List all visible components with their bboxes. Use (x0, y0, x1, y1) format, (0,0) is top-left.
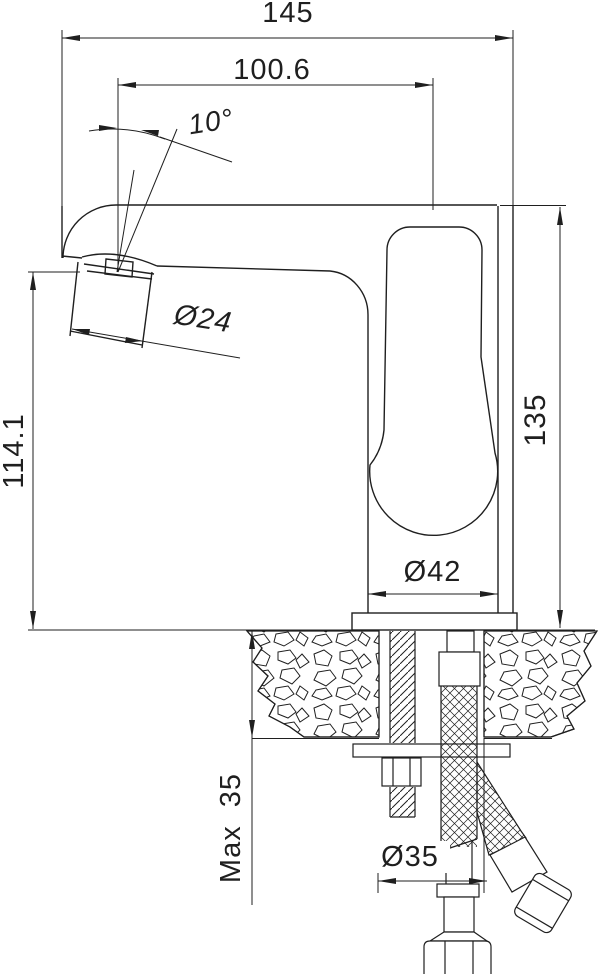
washer-plate (353, 744, 510, 757)
dim-body-height: 135 (520, 370, 552, 470)
dim-spout-projection: 100.6 (212, 54, 332, 86)
countertop-left-block (247, 631, 379, 737)
countertop-right-block (484, 631, 597, 737)
dimension-lines (28, 30, 595, 905)
technical-drawing-canvas: 145 100.6 10° Ø24 114.1 135 Ø42 Max 35 Ø… (0, 0, 604, 974)
dim-hole-diameter: Ø35 (370, 841, 450, 873)
dim-max-deck-thickness: Max 35 (215, 743, 247, 913)
supply-hose-angled (477, 762, 574, 935)
countertop-section (247, 631, 597, 737)
dim-base-diameter: Ø42 (385, 556, 480, 588)
handle-outline (370, 227, 498, 535)
faucet-drawing-linework (0, 0, 604, 974)
threaded-stud (390, 631, 415, 817)
dim-overall-length: 145 (238, 0, 338, 29)
dim-spout-height: 114.1 (0, 391, 30, 511)
mounting-hex-nut (382, 758, 421, 786)
